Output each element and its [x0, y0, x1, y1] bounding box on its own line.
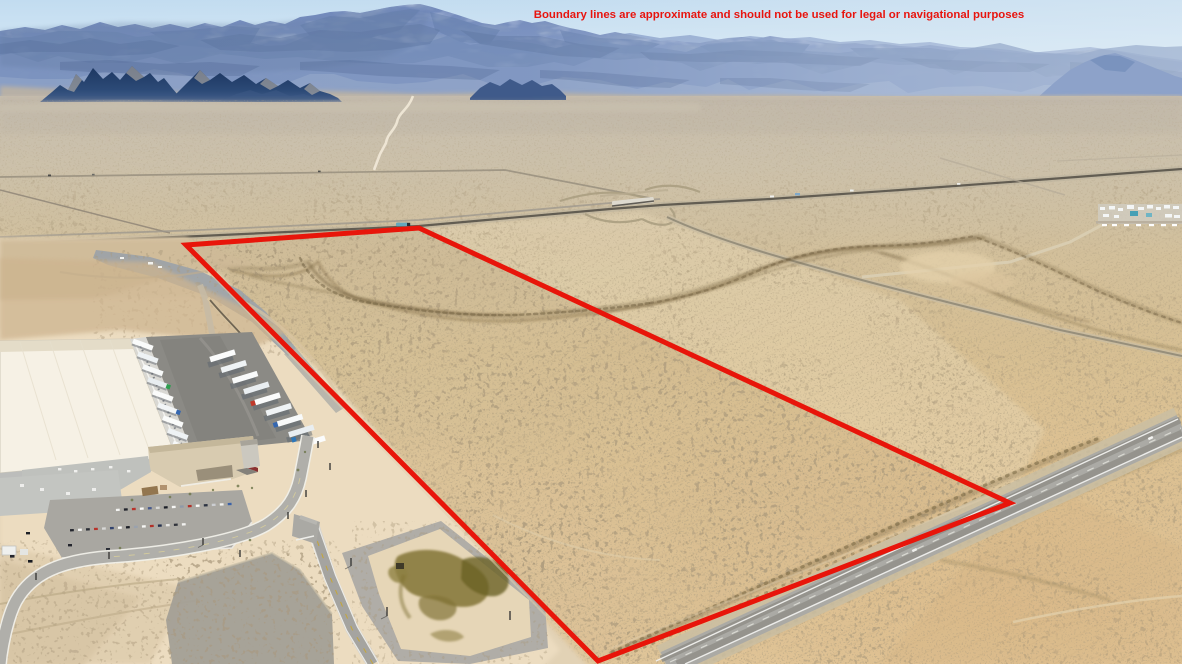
svg-text:Boundary lines are approximate: Boundary lines are approximate and shoul… [534, 9, 1025, 21]
